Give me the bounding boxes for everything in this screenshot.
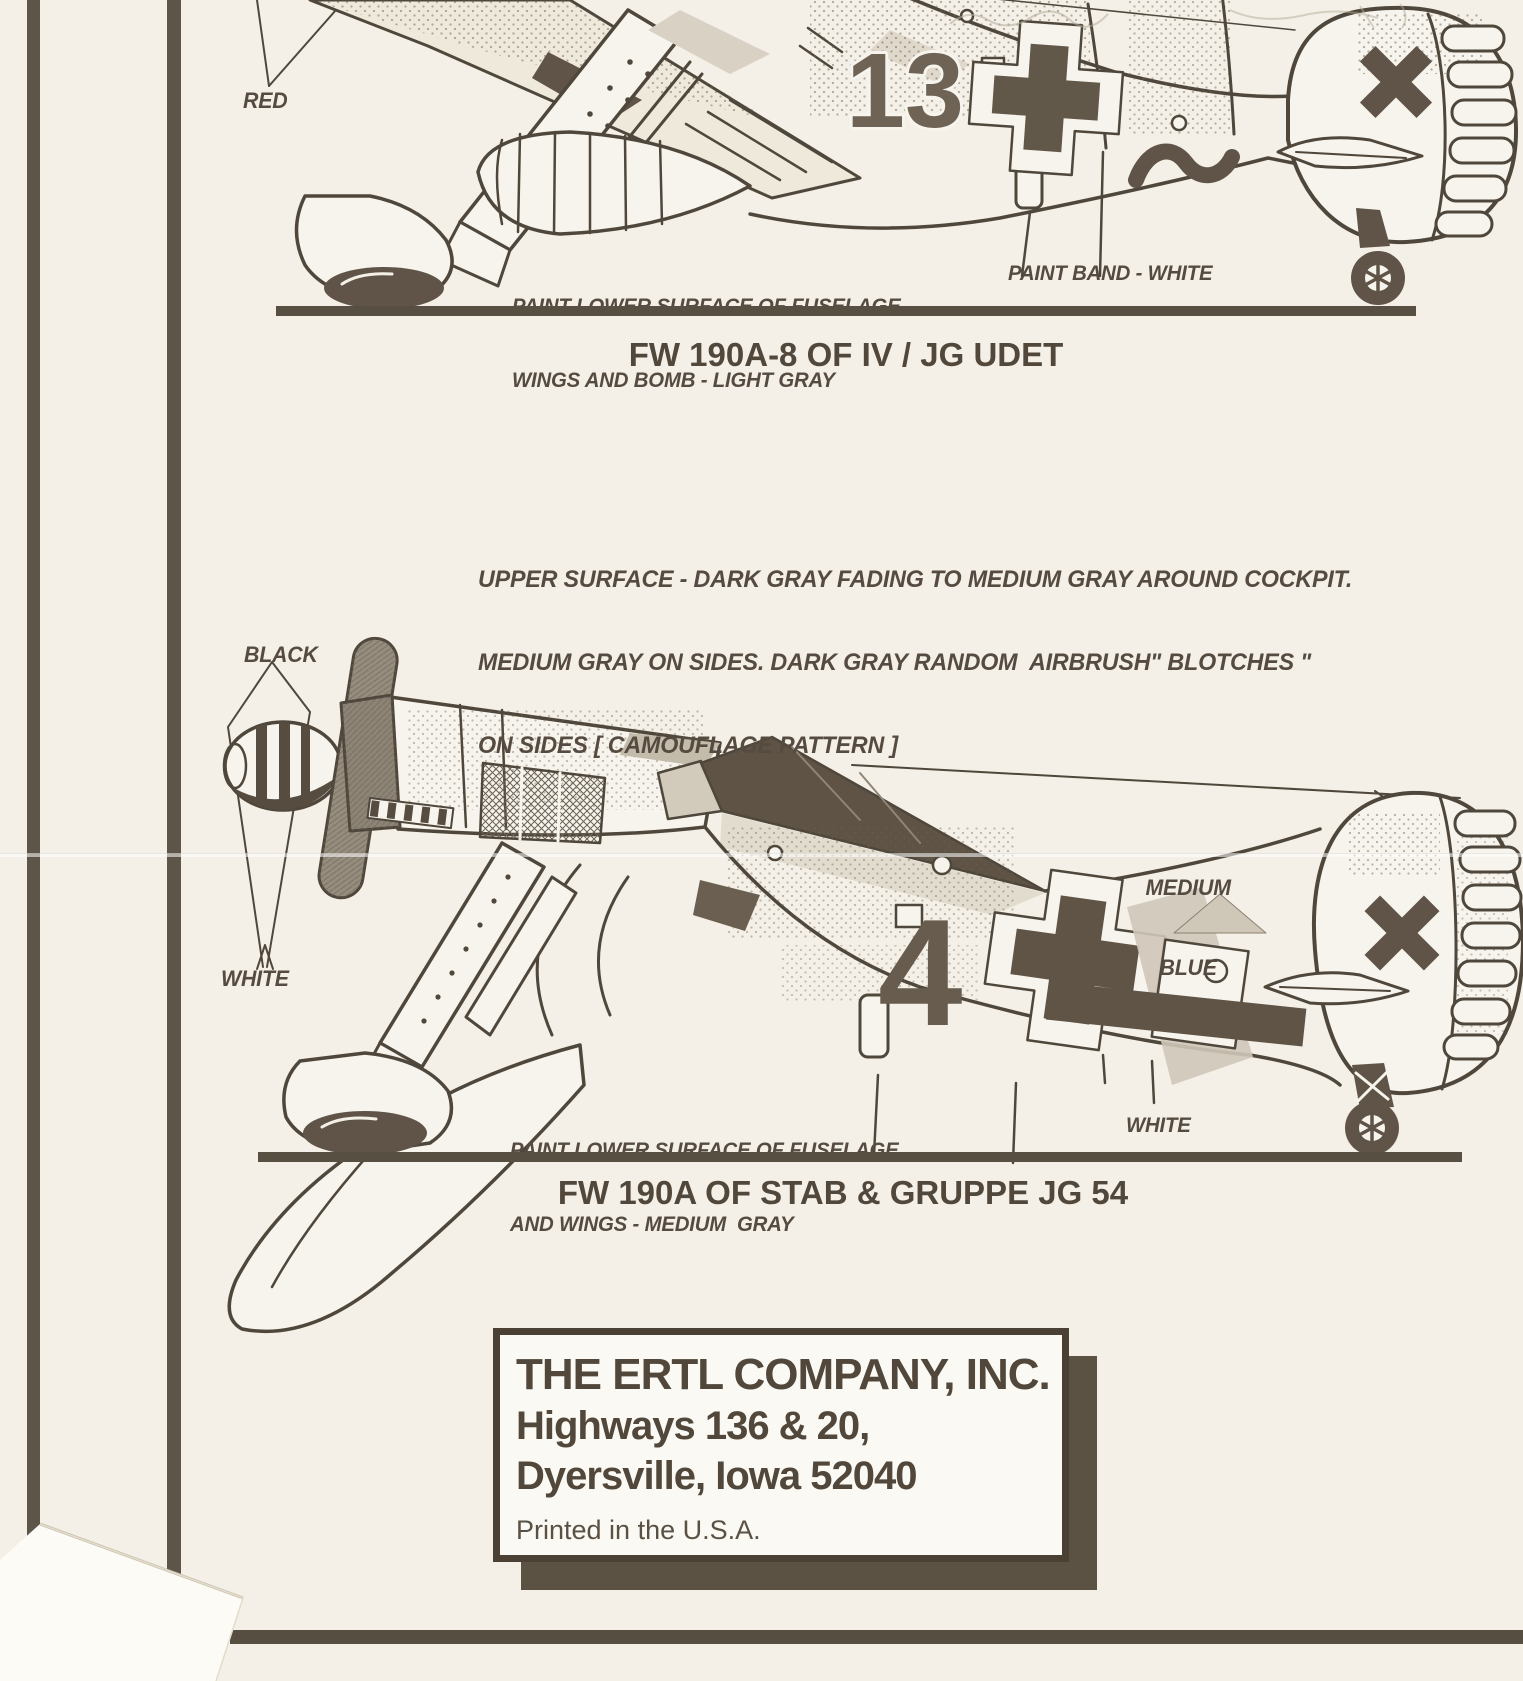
paint-band-label: PAINT BAND - WHITE (1008, 262, 1212, 286)
top-caption: FW 190A-8 OF IV / JG UDET (396, 336, 1296, 374)
bottom-plane-tail (1265, 793, 1523, 1155)
publisher-address-line1: Highways 136 & 20, (516, 1401, 1052, 1451)
camouflage-note-line1: UPPER SURFACE - DARK GRAY FADING TO MEDI… (478, 566, 1352, 593)
medium-blue-line1: MEDIUM (1128, 874, 1248, 902)
bottom-plane-spinner (224, 715, 341, 820)
top-plane-tilde-marking (1136, 152, 1232, 180)
publisher-company: THE ERTL COMPANY, INC. (516, 1349, 1052, 1401)
spinner-leader-lines (228, 662, 310, 969)
left-border-rule-outer (27, 0, 40, 1610)
white-right-label: WHITE (1126, 1114, 1191, 1138)
white-right-leader-lines (1103, 1055, 1154, 1103)
publisher-box: THE ERTL COMPANY, INC. Highways 136 & 20… (493, 1328, 1069, 1562)
folded-paper-corner (0, 1510, 300, 1681)
top-plane-number-13: 13 (846, 32, 964, 150)
publisher-address-line2: Dyersville, Iowa 52040 (516, 1451, 1052, 1501)
scanned-model-kit-instruction-sheet: { "document": { "kind": "model kit paint… (0, 0, 1523, 1681)
ground-line-top (276, 306, 1416, 316)
publisher-printed-note: Printed in the U.S.A. (516, 1515, 1052, 1546)
bottom-paint-note-line2: AND WINGS - MEDIUM GRAY (510, 1212, 899, 1238)
camouflage-note-line3: ON SIDES [ CAMOUFLAGE PATTERN ] (478, 732, 1352, 759)
paper-crease (0, 853, 1523, 857)
bottom-border-rule (230, 1630, 1523, 1644)
ground-line-bottom (258, 1152, 1462, 1162)
top-plane-tail (1278, 8, 1516, 305)
medium-blue-line2: BLUE (1128, 954, 1248, 982)
camouflage-note: UPPER SURFACE - DARK GRAY FADING TO MEDI… (478, 510, 1352, 787)
top-paint-note: PAINT LOWER SURFACE OF FUSELAGE WINGS AN… (512, 246, 901, 418)
red-leader-lines (257, 0, 343, 86)
bottom-plane-number-4: 4 (878, 888, 963, 1058)
red-label: RED (243, 88, 287, 114)
bottom-caption: FW 190A OF STAB & GRUPPE JG 54 (393, 1174, 1293, 1212)
white-left-label: WHITE (221, 966, 289, 992)
paint-band-leader-line (1100, 152, 1103, 276)
black-label: BLACK (244, 642, 318, 668)
pencil-scribble (930, 0, 1520, 42)
camouflage-note-line2: MEDIUM GRAY ON SIDES. DARK GRAY RANDOM A… (478, 649, 1352, 676)
medium-blue-label: MEDIUM BLUE (1128, 822, 1248, 1008)
